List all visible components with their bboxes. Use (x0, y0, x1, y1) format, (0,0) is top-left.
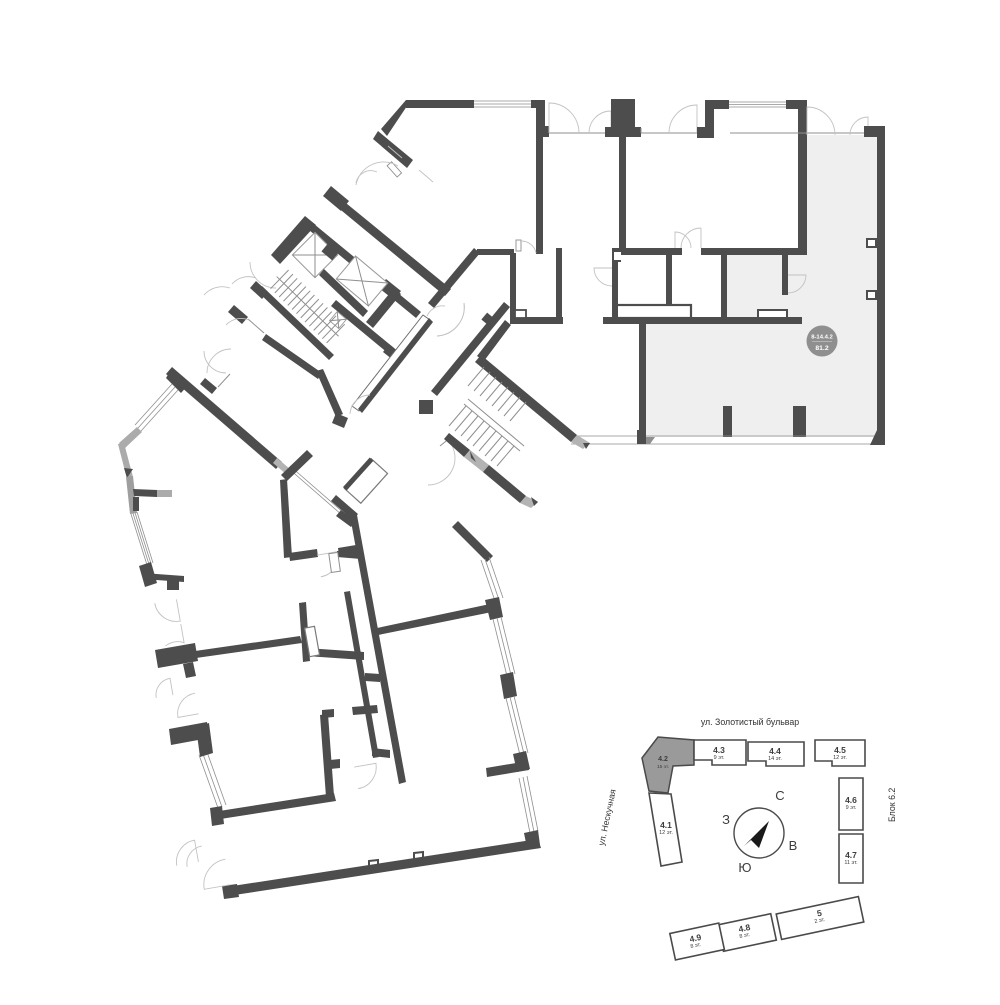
svg-text:4.7: 4.7 (845, 850, 857, 860)
svg-text:4.2: 4.2 (658, 756, 668, 763)
svg-text:14 эт.: 14 эт. (768, 756, 782, 762)
svg-text:4.4: 4.4 (769, 746, 781, 756)
svg-text:З: З (722, 812, 730, 827)
svg-text:12 эт.: 12 эт. (659, 830, 673, 836)
svg-text:С: С (775, 788, 784, 803)
svg-text:4.5: 4.5 (834, 745, 846, 755)
svg-text:4.3: 4.3 (713, 745, 725, 755)
svg-text:Блок 6.2: Блок 6.2 (887, 788, 897, 822)
svg-text:11 эт.: 11 эт. (844, 860, 858, 866)
svg-text:9 эт.: 9 эт. (846, 805, 857, 811)
svg-text:4.1: 4.1 (660, 820, 672, 830)
svg-text:8-14.4.2: 8-14.4.2 (811, 335, 833, 341)
svg-text:В: В (789, 838, 798, 853)
svg-text:15 эт.: 15 эт. (657, 764, 669, 770)
svg-text:81.2: 81.2 (815, 345, 828, 352)
svg-text:Ю: Ю (738, 860, 751, 875)
svg-text:9 эт.: 9 эт. (714, 755, 725, 761)
svg-text:ул. Золотистый бульвар: ул. Золотистый бульвар (701, 717, 799, 727)
svg-text:4.6: 4.6 (845, 795, 857, 805)
svg-text:12 эт.: 12 эт. (833, 755, 847, 761)
